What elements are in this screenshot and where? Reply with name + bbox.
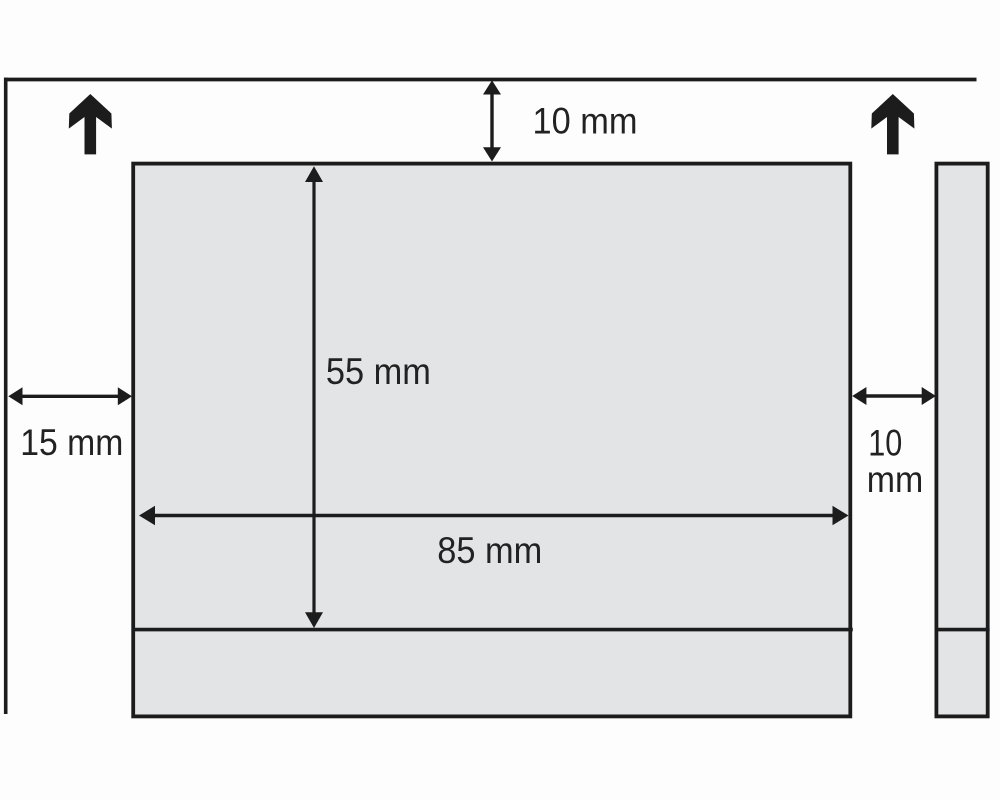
svg-text:10: 10: [868, 422, 902, 463]
svg-text:85 mm: 85 mm: [437, 530, 542, 571]
svg-text:mm: mm: [867, 459, 924, 500]
svg-text:55 mm: 55 mm: [326, 351, 431, 392]
svg-text:15 mm: 15 mm: [20, 422, 123, 463]
svg-text:10 mm: 10 mm: [533, 101, 638, 142]
